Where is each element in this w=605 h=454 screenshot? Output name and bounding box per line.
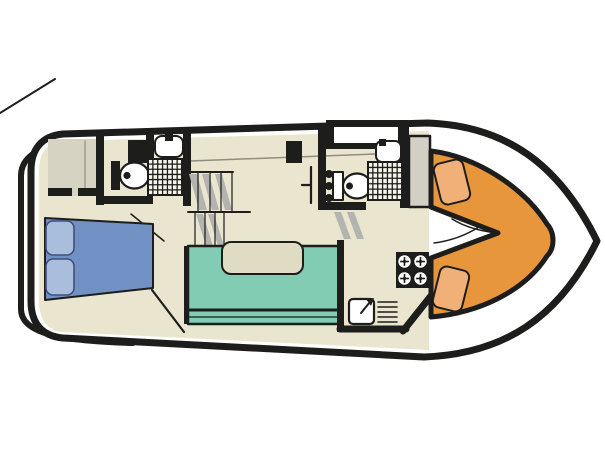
aft-shower-tray xyxy=(148,159,182,195)
helm-cabinet xyxy=(409,136,430,207)
dinette-table xyxy=(222,242,303,274)
fore-shower-tray xyxy=(368,162,402,200)
aft-bathroom-wall-right xyxy=(183,132,191,206)
fore-sink-faucet xyxy=(379,139,386,146)
fore-bathroom-wall-bottom xyxy=(318,202,366,210)
stove-burner-3 xyxy=(398,272,410,284)
wardrobe-wall-a xyxy=(48,188,72,196)
corridor-bulkhead xyxy=(286,141,302,163)
fore-toilet-tank xyxy=(333,172,343,200)
pillow-bottom xyxy=(46,259,74,295)
stove-burner-1 xyxy=(398,255,410,267)
wardrobe-wall-b xyxy=(78,188,96,196)
aft-toilet-flush xyxy=(123,172,130,179)
fore-toilet-flush xyxy=(346,183,353,190)
stove-burner-4 xyxy=(414,272,426,284)
aft-bathroom-wall-bottom xyxy=(96,196,153,204)
stern-line xyxy=(0,79,55,113)
galley-partition xyxy=(337,240,344,332)
hinge-dot-3 xyxy=(325,194,333,202)
aft-sink-stub xyxy=(146,132,154,159)
aft-sink-faucet xyxy=(165,134,173,141)
aft-bathroom-wall-left xyxy=(96,133,104,205)
wardrobe xyxy=(48,139,96,196)
boat-floorplan-diagram xyxy=(0,0,605,454)
fore-bathroom-wall-left xyxy=(318,126,326,210)
hinge-dot-2 xyxy=(325,182,333,190)
boat-floorplan-page xyxy=(0,0,605,454)
pillow-top xyxy=(46,221,74,255)
stove-burner-2 xyxy=(414,255,426,267)
aft-toilet-cistern xyxy=(111,161,120,190)
hinge-dot-1 xyxy=(325,170,333,178)
